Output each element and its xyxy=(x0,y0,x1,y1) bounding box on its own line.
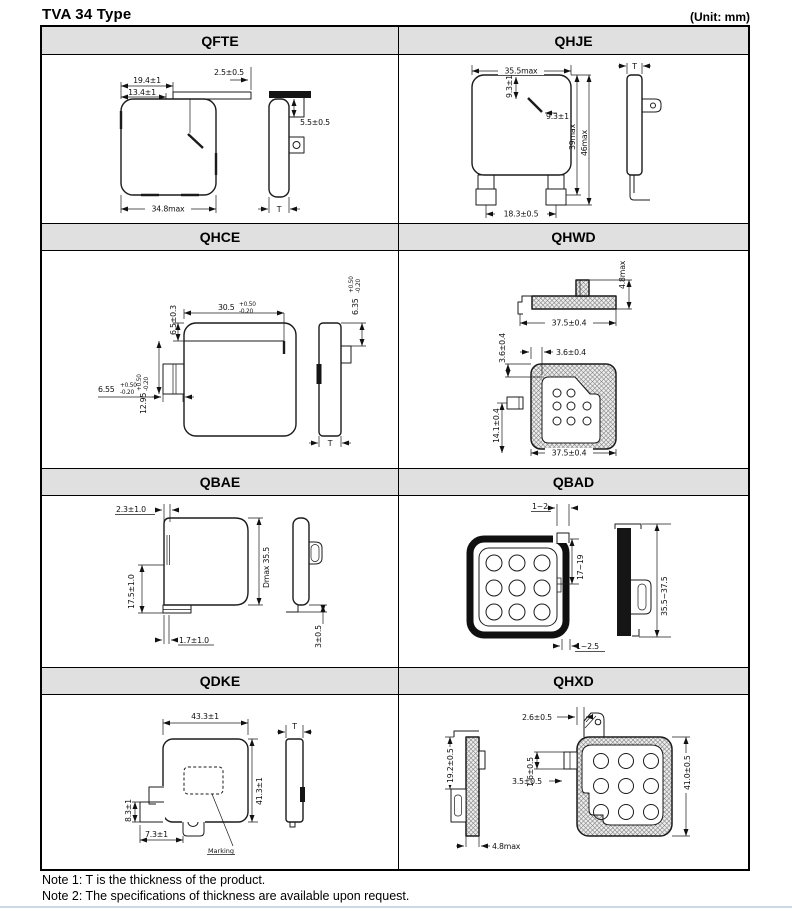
qbad-side-view: 35.5~37.5 xyxy=(615,524,671,637)
qdke-side-view: T xyxy=(277,722,312,827)
qhxd-drawing: 19.2±0.5 4.8max 2.6±0.5 xyxy=(399,695,748,869)
qhxd-front-view xyxy=(564,713,672,836)
datasheet-page: { "header": { "title": "TVA 34 Type", "u… xyxy=(0,0,792,908)
dim-label: 19.4±1 xyxy=(133,76,161,85)
page-title: TVA 34 Type xyxy=(42,6,131,23)
qhje-side-view: T xyxy=(618,62,661,200)
dim-label: 37.5±0.4 xyxy=(552,449,587,458)
dim-label: 35.5~37.5 xyxy=(660,576,669,616)
panel-qhje: 35.5max 9.3±1 9.3±1 39max 46max 18.3±0.5… xyxy=(399,55,748,223)
dim-label: 34.8max xyxy=(152,205,186,214)
panel-header-qhxd: QHXD xyxy=(399,667,748,695)
dim-tolerance: -0.20 xyxy=(239,309,254,315)
panel-header-qbad: QBAD xyxy=(399,468,748,496)
panel-qhxd: 19.2±0.5 4.8max 2.6±0.5 xyxy=(399,695,748,869)
qfte-side-view: 5.5±0.5 T xyxy=(258,91,330,214)
dim-label: 39max xyxy=(568,124,577,150)
dim-label: 4.8max xyxy=(492,842,521,851)
dim-tolerance: +0.50 xyxy=(349,276,355,293)
dim-label: 17~19 xyxy=(576,554,585,580)
dim-label: 46max xyxy=(580,130,589,156)
qhje-drawing: 35.5max 9.3±1 9.3±1 39max 46max 18.3±0.5… xyxy=(399,55,748,223)
panel-header-qhwd: QHWD xyxy=(399,223,748,251)
dim-label: 2.5±0.5 xyxy=(214,68,244,77)
qfte-drawing: 19.4±1 13.4±1 2.5±0.5 34.8max 5.5±0.5 T xyxy=(42,55,399,223)
qhce-side-view: 6.35 +0.50 -0.20 T xyxy=(309,276,366,448)
marking-area xyxy=(184,767,223,794)
dim-label: 19.2±0.5 xyxy=(446,748,455,783)
qfte-front-view xyxy=(121,92,251,195)
note-2: Note 2: The specifications of thickness … xyxy=(42,889,409,903)
note-1: Note 1: T is the thickness of the produc… xyxy=(42,873,265,887)
drawing-table: QFTE QHJE 19.4±1 13.4±1 2.5±0.5 34.8max xyxy=(40,25,750,871)
thickness-label: T xyxy=(327,439,333,448)
dim-tolerance: +0.50 xyxy=(239,302,256,308)
panel-qhwd: 4.8max 37.5±0.4 3.6±0.4 3.6±0.4 xyxy=(399,251,748,468)
dim-label: 3±0.5 xyxy=(314,625,323,648)
dim-label: 13.4±1 xyxy=(128,88,156,97)
dim-label: 12.95 xyxy=(139,392,148,414)
panel-header-qfte: QFTE xyxy=(42,27,399,55)
dim-tolerance: -0.20 xyxy=(356,278,362,293)
qhce-front-view xyxy=(163,323,296,436)
dim-label: 6.35 xyxy=(351,298,360,315)
dim-label: Dmax 35.5 xyxy=(262,547,271,588)
panel-header-qhje: QHJE xyxy=(399,27,748,55)
dim-label: 2.3±1.0 xyxy=(116,505,146,514)
dim-label: 8.3±1 xyxy=(124,799,133,822)
dim-label: 9.3±1 xyxy=(546,112,569,121)
thickness-label: T xyxy=(276,205,282,214)
qhje-dimensions: 35.5max 9.3±1 9.3±1 39max 46max 18.3±0.5 xyxy=(472,65,592,219)
panel-qfte: 19.4±1 13.4±1 2.5±0.5 34.8max 5.5±0.5 T xyxy=(42,55,399,223)
dim-label: 3.6±0.4 xyxy=(556,348,586,357)
qhwd-drawing: 4.8max 37.5±0.4 3.6±0.4 3.6±0.4 xyxy=(399,251,748,468)
dim-label: 7.3±1 xyxy=(145,830,168,839)
panel-header-qdke: QDKE xyxy=(42,667,399,695)
dim-label: 18.3±0.5 xyxy=(504,210,539,219)
thickness-label: T xyxy=(631,62,637,71)
dim-tolerance: -0.20 xyxy=(120,390,135,396)
panel-qbae: 2.3±1.0 Dmax 35.5 17.5±1.0 1.7±1.0 3±0.5 xyxy=(42,496,399,667)
dim-label: 35.5max xyxy=(505,67,539,76)
dim-label: 37.5±0.4 xyxy=(552,319,587,328)
qhce-drawing: 30.5 +0.50 -0.20 6.5±0.3 6.55 +0.50 -0.2… xyxy=(42,251,399,468)
qhje-front-view xyxy=(472,75,571,205)
qfte-dimensions: 19.4±1 13.4±1 2.5±0.5 34.8max xyxy=(121,67,251,214)
marking-label: Marking xyxy=(208,847,234,855)
panel-qhce: 30.5 +0.50 -0.20 6.5±0.3 6.55 +0.50 -0.2… xyxy=(42,251,399,468)
qbae-front-view xyxy=(163,518,248,613)
dim-tolerance: -0.20 xyxy=(144,376,150,391)
qbad-front-view xyxy=(470,531,571,635)
qdke-drawing: Marking 43.3±1 41.3±1 8.3±1 7.3±1 T xyxy=(42,695,399,869)
qbae-drawing: 2.3±1.0 Dmax 35.5 17.5±1.0 1.7±1.0 3±0.5 xyxy=(42,496,399,667)
qbad-drawing: 1~2 17~19 1~2.5 35.5~37.5 xyxy=(399,496,748,667)
unit-label: (Unit: mm) xyxy=(690,10,750,24)
dim-label: 1.7±1.0 xyxy=(179,636,209,645)
dim-label: 9.3±1 xyxy=(505,75,514,98)
dim-label: 41.3±1 xyxy=(255,777,264,805)
qhce-dimensions: 30.5 +0.50 -0.20 6.5±0.3 6.55 +0.50 -0.2… xyxy=(98,302,284,414)
panel-header-qbae: QBAE xyxy=(42,468,399,496)
dim-tolerance: +0.50 xyxy=(120,383,137,389)
qhxd-side-view: 19.2±0.5 4.8max xyxy=(444,731,521,851)
dim-label: 6.55 xyxy=(98,385,115,394)
dim-label: 30.5 xyxy=(218,303,235,312)
dim-label: 1~2 xyxy=(532,502,548,511)
dim-label: 4.8max xyxy=(618,260,627,289)
dim-label: 1~2.5 xyxy=(576,642,599,651)
dim-label: 41.0±0.5 xyxy=(683,755,692,790)
panel-qbad: 1~2 17~19 1~2.5 35.5~37.5 xyxy=(399,496,748,667)
dim-label: 14.1±0.4 xyxy=(492,408,501,443)
dim-label: 3.6±0.4 xyxy=(498,333,507,363)
thickness-label: T xyxy=(291,722,297,731)
panel-qdke: Marking 43.3±1 41.3±1 8.3±1 7.3±1 T xyxy=(42,695,399,869)
dim-label: 6.5±0.3 xyxy=(169,305,178,335)
dim-tolerance: +0.50 xyxy=(137,374,143,391)
qhwd-top-view: 4.8max 37.5±0.4 xyxy=(518,260,632,327)
dim-label: 5.5±0.5 xyxy=(300,118,330,127)
dim-label: 3.5±0.5 xyxy=(512,777,542,786)
qbae-side-view: 3±0.5 xyxy=(286,518,327,648)
dim-label: 2.6±0.5 xyxy=(522,713,552,722)
dim-label: 17.5±1.0 xyxy=(127,574,136,609)
panel-header-qhce: QHCE xyxy=(42,223,399,251)
dim-label: 43.3±1 xyxy=(191,712,219,721)
